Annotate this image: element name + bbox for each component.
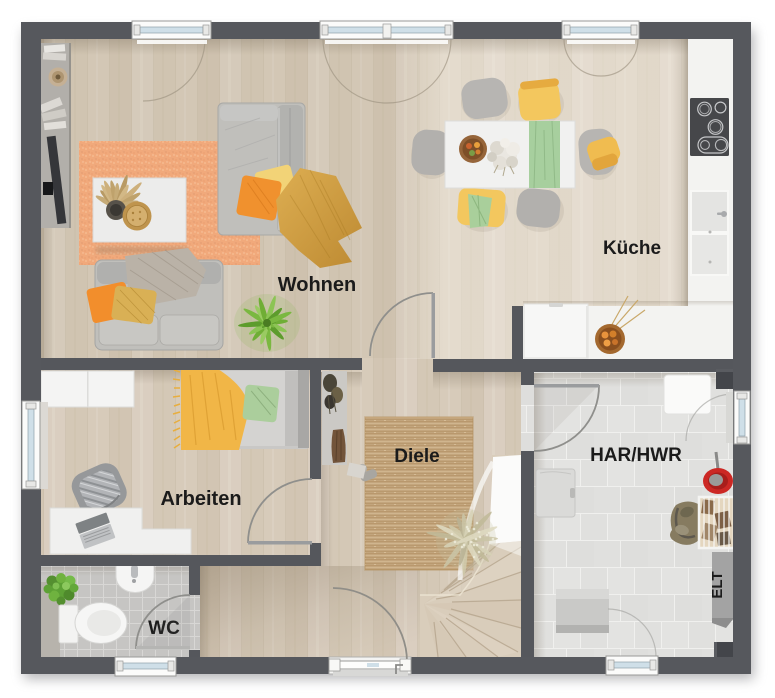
svg-text:HAR/HWR: HAR/HWR — [590, 445, 682, 466]
svg-text:Arbeiten: Arbeiten — [160, 488, 241, 510]
svg-text:ELT: ELT — [709, 571, 726, 598]
svg-text:Wohnen: Wohnen — [278, 274, 357, 296]
svg-text:Diele: Diele — [394, 446, 439, 467]
svg-text:Küche: Küche — [603, 238, 661, 259]
